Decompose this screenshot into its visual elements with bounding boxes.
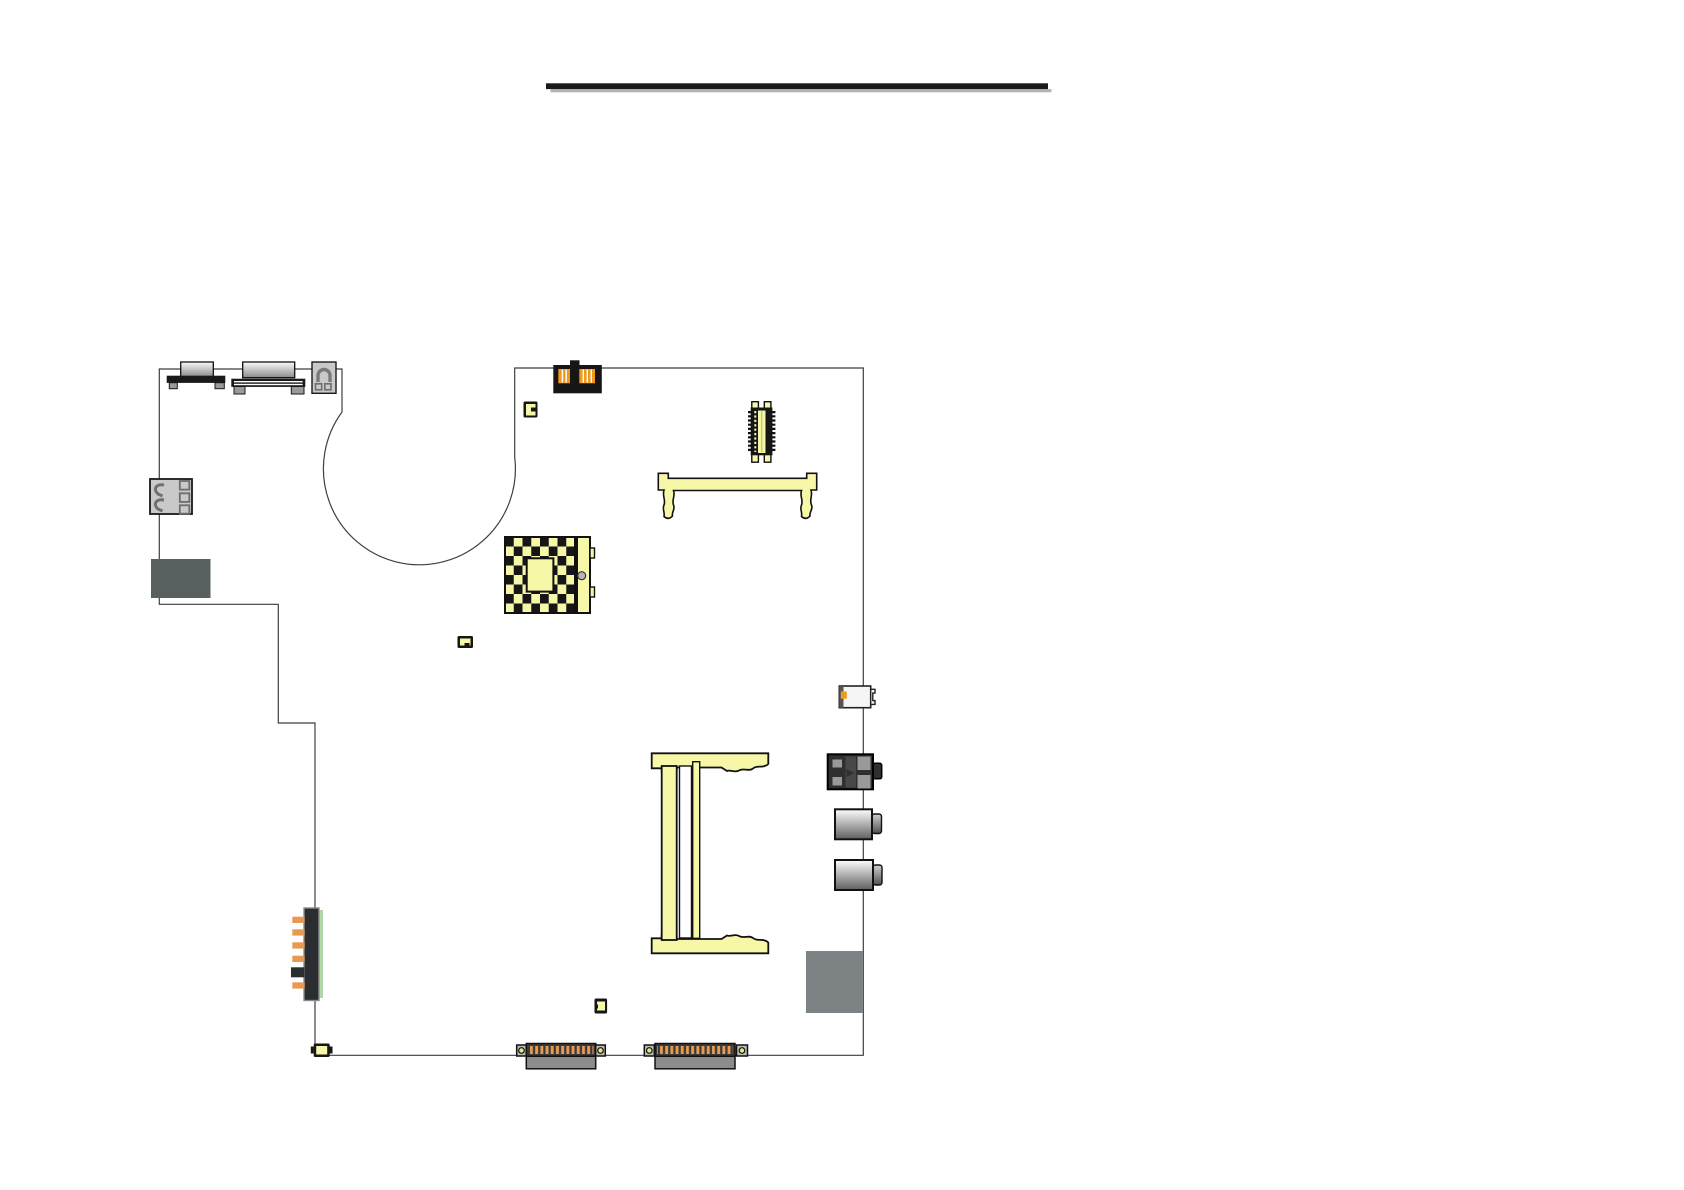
power-connector <box>312 362 336 393</box>
smd-component-d <box>595 999 608 1014</box>
dual-jack-connector <box>553 360 602 393</box>
slate-block <box>151 559 211 598</box>
modem-jack <box>828 754 882 789</box>
audio-jack-2 <box>835 860 882 890</box>
minipci-socket <box>658 473 816 518</box>
usb-ports <box>150 479 192 514</box>
serial-port <box>167 362 226 389</box>
audio-jack-1 <box>835 809 882 839</box>
memory-socket <box>652 753 769 953</box>
cpu-socket <box>505 537 595 613</box>
smd-component-b <box>458 636 474 648</box>
ir-port <box>839 686 875 708</box>
docking-connector-2 <box>644 1044 747 1069</box>
docking-connector-1 <box>517 1044 606 1069</box>
page <box>0 0 1684 1190</box>
lvds-connector <box>750 402 774 463</box>
smd-component-a <box>524 402 538 418</box>
smd-component-c <box>311 1044 333 1058</box>
title-underline <box>546 83 1052 92</box>
shield-block <box>806 951 863 1013</box>
vga-port <box>231 362 305 394</box>
battery-connector <box>291 908 323 1001</box>
cam-screw-icon <box>578 572 586 580</box>
